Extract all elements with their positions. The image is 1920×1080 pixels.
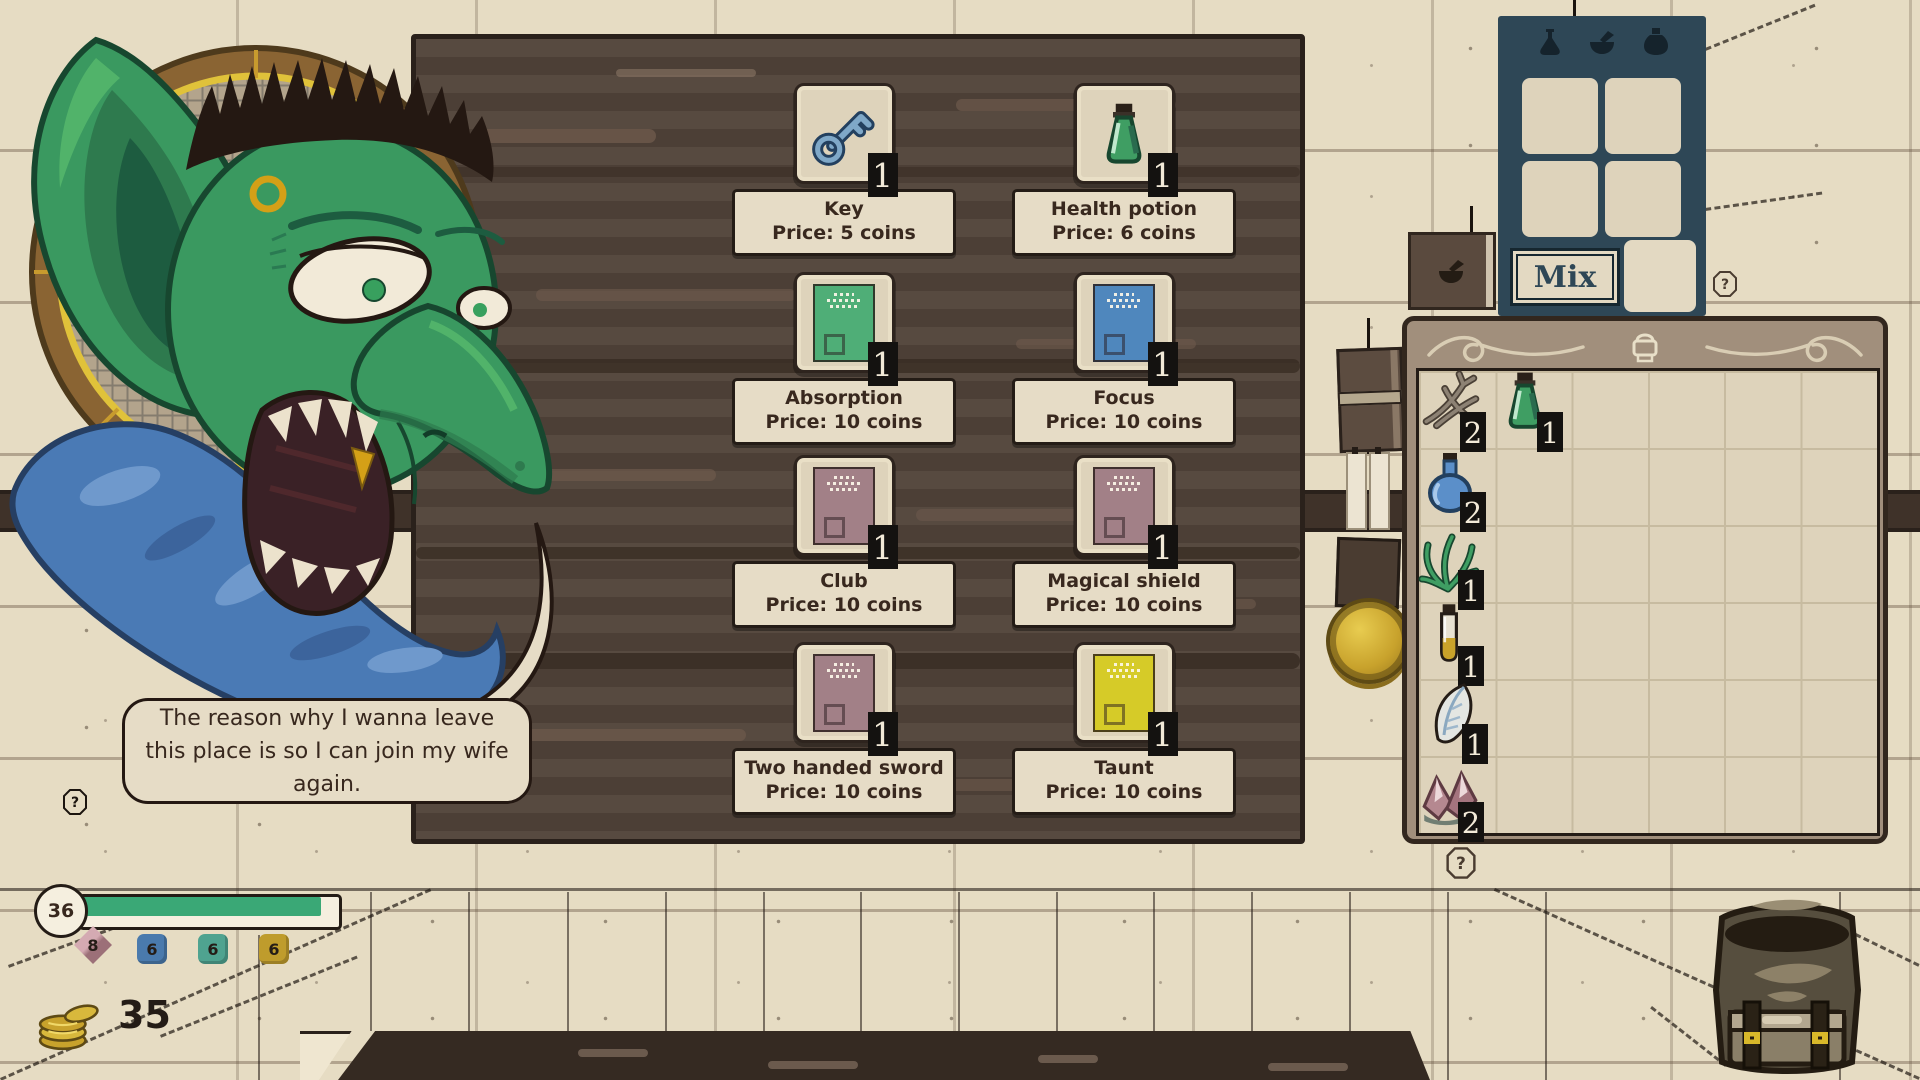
item-name: Club: [737, 569, 951, 593]
shop-item-taunt[interactable]: 1 Taunt Price: 10 coins: [1012, 642, 1236, 815]
inventory-item-blue-potion[interactable]: 2: [1420, 448, 1480, 520]
shop-item-key[interactable]: 1 Key Price: 5 coins: [732, 83, 956, 256]
shop-item-absorption[interactable]: 1 Absorption Price: 10 coins: [732, 272, 956, 445]
mix-slot-2[interactable]: [1605, 78, 1681, 154]
item-name: Two handed sword: [737, 756, 951, 780]
health-bar-fill: [81, 897, 321, 916]
hanging-wire: [1367, 318, 1370, 350]
mix-slot-4[interactable]: [1605, 161, 1681, 237]
item-count: 1: [868, 712, 898, 756]
mortar-pestle-icon: [1586, 26, 1618, 58]
inventory-item-pink-crystals[interactable]: 2: [1416, 760, 1482, 830]
item-price: Price: 10 coins: [737, 410, 951, 435]
inventory-item-health-potion[interactable]: 1: [1499, 370, 1551, 436]
hanging-wire: [1470, 206, 1473, 234]
inventory-item-herb[interactable]: 1: [1418, 526, 1480, 598]
item-name: Key: [737, 197, 951, 221]
svg-text:?: ?: [71, 795, 79, 811]
scroll-card-icon: [1093, 284, 1155, 362]
item-label: Absorption Price: 10 coins: [732, 378, 956, 445]
item-label: Club Price: 10 coins: [732, 561, 956, 628]
mix-button[interactable]: Mix: [1510, 248, 1620, 306]
item-count: 2: [1460, 412, 1486, 452]
gold-medallion: [1326, 598, 1412, 684]
inventory-item-oil-vial[interactable]: 1: [1430, 602, 1468, 676]
d6-die-icon: 6: [198, 934, 228, 964]
svg-text:?: ?: [1456, 854, 1466, 874]
scroll-card-icon: [813, 654, 875, 732]
backpack-icon: [1629, 329, 1661, 363]
mixing-panel: Mix: [1498, 16, 1706, 316]
game-screen: ? 1 Key Price: 5 coins: [0, 0, 1920, 1080]
mixing-help-icon[interactable]: ?: [1712, 270, 1738, 298]
item-price: Price: 10 coins: [1017, 593, 1231, 618]
inventory-item-feather-vial[interactable]: 1: [1424, 680, 1480, 752]
inventory-help-icon[interactable]: ?: [1444, 846, 1478, 880]
item-count: 1: [1148, 712, 1178, 756]
item-label: Key Price: 5 coins: [732, 189, 956, 256]
health-value: 36: [48, 900, 74, 922]
scroll-card-icon: [1093, 654, 1155, 732]
item-tile[interactable]: 1: [794, 642, 895, 743]
mixing-sign-button[interactable]: [1408, 232, 1496, 310]
health-value-badge: 36: [34, 884, 88, 938]
item-price: Price: 6 coins: [1017, 221, 1231, 246]
candle-icon: [1369, 452, 1390, 530]
scroll-card-icon: [813, 467, 875, 545]
item-count: 1: [1148, 342, 1178, 386]
item-count: 1: [1537, 412, 1563, 452]
item-count: 1: [1148, 153, 1178, 197]
backpack[interactable]: [1692, 890, 1882, 1080]
d6-die-icon: 6: [137, 934, 167, 964]
item-count: 1: [868, 525, 898, 569]
rug: [338, 1031, 1430, 1080]
health-bar: [78, 894, 342, 930]
flourish-icon: [1421, 327, 1591, 367]
shop-help-icon[interactable]: ?: [62, 788, 88, 816]
shop-item-magical-shield[interactable]: 1 Magical shield Price: 10 coins: [1012, 455, 1236, 628]
item-tile[interactable]: 1: [1074, 455, 1175, 556]
item-label: Taunt Price: 10 coins: [1012, 748, 1236, 815]
item-tile[interactable]: 1: [794, 455, 895, 556]
shop-item-health-potion[interactable]: 1 Health potion Price: 6 coins: [1012, 83, 1236, 256]
item-count: 1: [868, 153, 898, 197]
health-potion-icon: [1095, 101, 1153, 167]
item-tile[interactable]: 1: [794, 272, 895, 373]
hanging-ledger: [1336, 347, 1406, 453]
item-price: Price: 10 coins: [1017, 780, 1231, 805]
mix-slot-3[interactable]: [1522, 161, 1598, 237]
flask-icon: [1534, 26, 1566, 58]
mortar-pestle-icon: [1434, 256, 1470, 286]
item-count: 1: [868, 342, 898, 386]
candle-icon: [1346, 452, 1367, 530]
flourish-icon: [1699, 327, 1869, 367]
shop-item-club[interactable]: 1 Club Price: 10 coins: [732, 455, 956, 628]
item-count: 1: [1462, 724, 1488, 764]
d6-die-icon: 6: [259, 934, 289, 964]
shop-item-two-handed-sword[interactable]: 1 Two handed sword Price: 10 coins: [732, 642, 956, 815]
speech-bubble-tail: [448, 505, 578, 715]
item-price: Price: 10 coins: [737, 780, 951, 805]
scroll-card-icon: [1093, 467, 1155, 545]
item-tile[interactable]: 1: [1074, 642, 1175, 743]
svg-text:?: ?: [1721, 277, 1729, 293]
inventory-item-root[interactable]: 2: [1418, 368, 1484, 444]
item-label: Two handed sword Price: 10 coins: [732, 748, 956, 815]
floor-edge-line: [0, 888, 1920, 891]
item-price: Price: 10 coins: [1017, 410, 1231, 435]
item-price: Price: 5 coins: [737, 221, 951, 246]
item-label: Magical shield Price: 10 coins: [1012, 561, 1236, 628]
item-tile[interactable]: 1: [794, 83, 895, 184]
item-name: Health potion: [1017, 197, 1231, 221]
item-label: Health potion Price: 6 coins: [1012, 189, 1236, 256]
dialogue-bubble: The reason why I wanna leave this place …: [122, 698, 532, 804]
item-count: 2: [1458, 802, 1484, 842]
item-count: 1: [1148, 525, 1178, 569]
item-name: Absorption: [737, 386, 951, 410]
item-name: Taunt: [1017, 756, 1231, 780]
scroll-card-icon: [813, 284, 875, 362]
item-price: Price: 10 coins: [737, 593, 951, 618]
item-tile[interactable]: 1: [1074, 83, 1175, 184]
item-name: Focus: [1017, 386, 1231, 410]
dialogue-text: The reason why I wanna leave this place …: [143, 702, 511, 801]
coin-count: 35: [118, 993, 171, 1037]
shop-item-focus[interactable]: 1 Focus Price: 10 coins: [1012, 272, 1236, 445]
item-name: Magical shield: [1017, 569, 1231, 593]
item-label: Focus Price: 10 coins: [1012, 378, 1236, 445]
gold-coins-icon: [36, 993, 104, 1051]
bottle-icon: [1640, 26, 1672, 58]
mix-slot-1[interactable]: [1522, 78, 1598, 154]
mix-result-slot[interactable]: [1624, 240, 1696, 312]
item-tile[interactable]: 1: [1074, 272, 1175, 373]
